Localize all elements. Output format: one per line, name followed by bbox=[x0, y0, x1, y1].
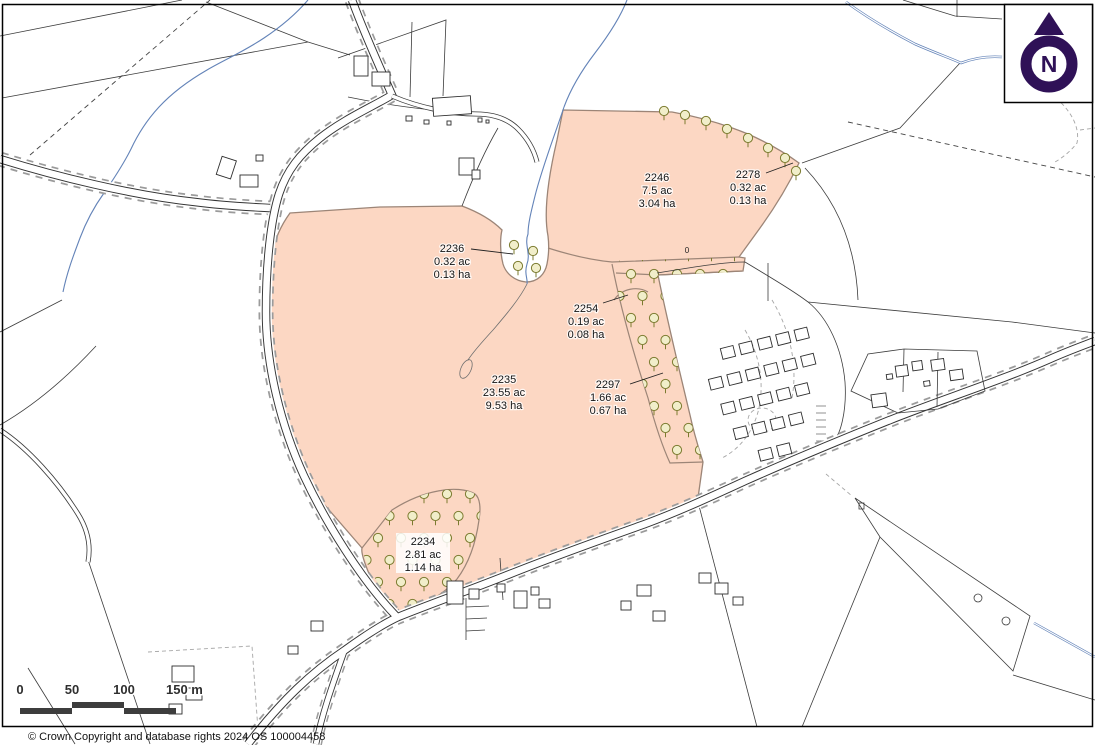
svg-text:50: 50 bbox=[65, 682, 79, 697]
svg-text:N: N bbox=[1041, 51, 1058, 77]
scale-segment bbox=[72, 702, 124, 708]
site-plan-map: 2246 7.5 ac 3.04 ha 2278 0.32 ac 0.13 ha… bbox=[0, 0, 1095, 745]
svg-text:2.81 ac: 2.81 ac bbox=[405, 549, 442, 561]
svg-text:2254: 2254 bbox=[574, 303, 598, 315]
svg-text:0.08 ha: 0.08 ha bbox=[568, 329, 606, 341]
svg-text:23.55 ac: 23.55 ac bbox=[483, 387, 526, 399]
svg-text:9.53 ha: 9.53 ha bbox=[486, 400, 524, 412]
svg-text:0: 0 bbox=[16, 682, 23, 697]
svg-text:2246: 2246 bbox=[645, 172, 669, 184]
svg-text:2278: 2278 bbox=[736, 169, 760, 181]
gate-marker: 0 bbox=[685, 246, 690, 255]
svg-text:2234: 2234 bbox=[411, 536, 435, 548]
svg-text:0.67 ha: 0.67 ha bbox=[590, 405, 628, 417]
svg-text:0.13 ha: 0.13 ha bbox=[434, 269, 472, 281]
north-arrow: N bbox=[1005, 5, 1093, 103]
svg-text:2235: 2235 bbox=[492, 374, 516, 386]
svg-text:3.04 ha: 3.04 ha bbox=[639, 198, 677, 210]
svg-text:1.66 ac: 1.66 ac bbox=[590, 392, 627, 404]
svg-text:0.13 ha: 0.13 ha bbox=[730, 195, 768, 207]
svg-text:7.5 ac: 7.5 ac bbox=[642, 185, 672, 197]
copyright-notice: © Crown Copyright and database rights 20… bbox=[28, 731, 325, 743]
svg-text:2236: 2236 bbox=[440, 243, 464, 255]
svg-text:100: 100 bbox=[113, 682, 135, 697]
scale-segment bbox=[124, 708, 176, 714]
scale-segment bbox=[20, 708, 72, 714]
svg-text:1.14 ha: 1.14 ha bbox=[405, 562, 443, 574]
svg-text:0.32 ac: 0.32 ac bbox=[434, 256, 471, 268]
parcel-label-2234: 2234 2.81 ac 1.14 ha bbox=[396, 533, 450, 574]
svg-text:0.19 ac: 0.19 ac bbox=[568, 316, 605, 328]
svg-text:0.32 ac: 0.32 ac bbox=[730, 182, 767, 194]
svg-text:150 m: 150 m bbox=[166, 682, 203, 697]
svg-text:2297: 2297 bbox=[596, 379, 620, 391]
